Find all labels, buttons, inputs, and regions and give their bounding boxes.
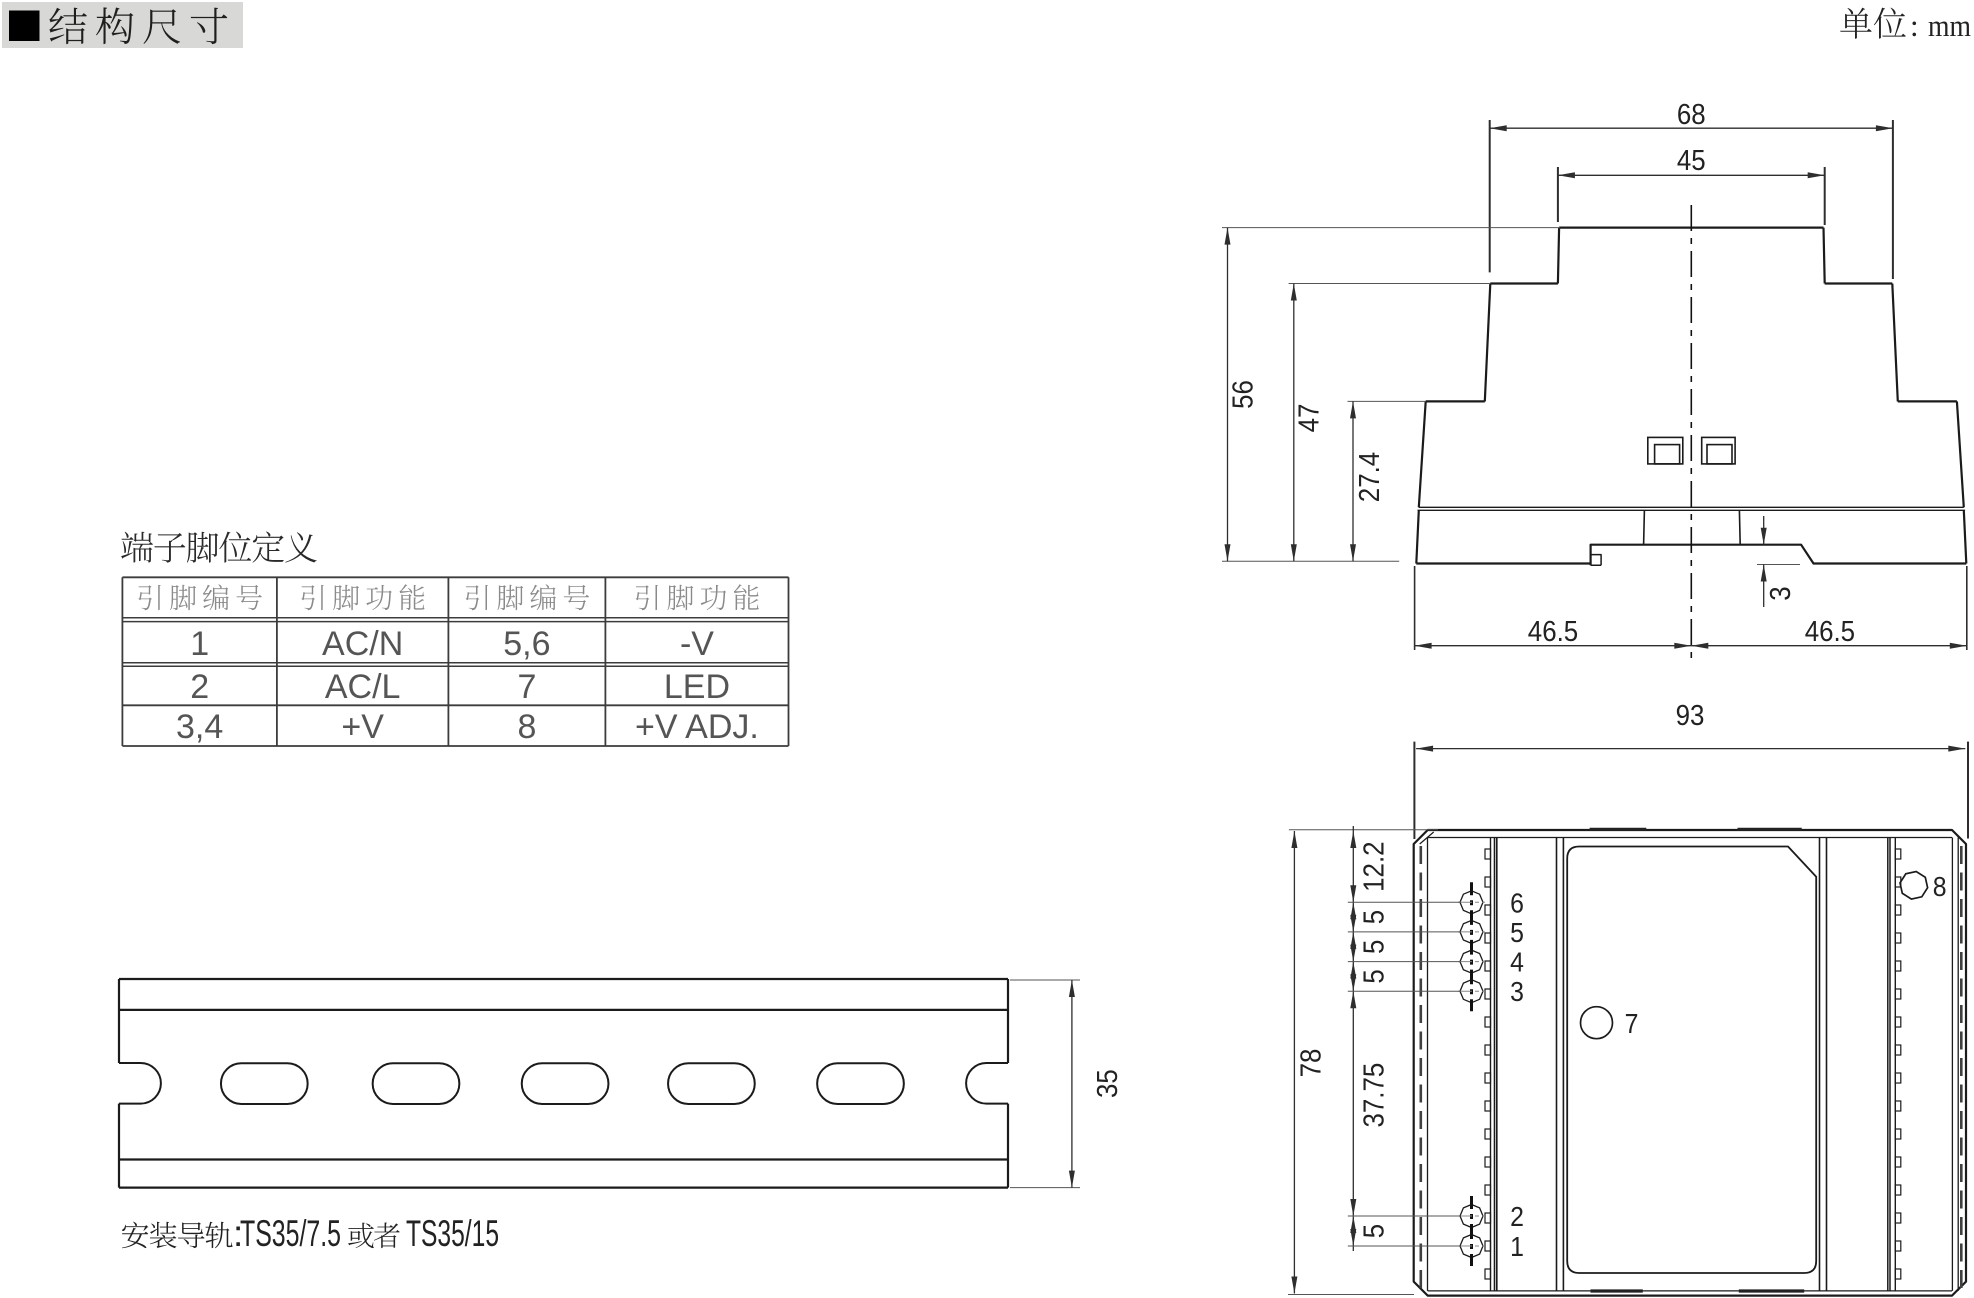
svg-text:5: 5 [1359, 910, 1391, 924]
svg-text:1: 1 [1510, 1231, 1524, 1262]
svg-text:12.2: 12.2 [1359, 841, 1391, 891]
svg-text:-V: -V [680, 625, 714, 663]
svg-text:45: 45 [1677, 145, 1706, 177]
svg-text:LED: LED [664, 668, 730, 706]
svg-text:mm: mm [1928, 8, 1971, 43]
svg-text:5: 5 [1359, 1224, 1391, 1238]
svg-text:56: 56 [1227, 380, 1259, 409]
svg-text:7: 7 [517, 668, 536, 706]
svg-text:6: 6 [1510, 887, 1524, 918]
svg-text:AC/N: AC/N [322, 625, 403, 663]
svg-text:AC/L: AC/L [325, 668, 401, 706]
svg-text:68: 68 [1677, 99, 1706, 131]
svg-text:+V: +V [341, 708, 384, 746]
svg-text:2: 2 [190, 668, 209, 706]
svg-text:8: 8 [1933, 871, 1947, 902]
svg-text:TS35/7.5: TS35/7.5 [240, 1213, 341, 1254]
svg-text:93: 93 [1676, 700, 1705, 732]
svg-text:8: 8 [517, 708, 536, 746]
svg-text::: : [1910, 8, 1919, 43]
svg-text:37.75: 37.75 [1359, 1063, 1391, 1128]
svg-text:5,6: 5,6 [503, 625, 550, 663]
svg-text:3: 3 [1510, 976, 1524, 1007]
svg-text:5: 5 [1359, 969, 1391, 983]
svg-text:4: 4 [1510, 947, 1524, 978]
svg-text:46.5: 46.5 [1528, 616, 1578, 648]
svg-text:5: 5 [1510, 917, 1524, 948]
svg-text:47: 47 [1294, 404, 1326, 433]
svg-text:1: 1 [190, 625, 209, 663]
svg-text:3,4: 3,4 [176, 708, 223, 746]
svg-text:27.4: 27.4 [1354, 452, 1386, 502]
svg-text:7: 7 [1625, 1008, 1639, 1039]
svg-text:35: 35 [1092, 1069, 1124, 1098]
svg-text:5: 5 [1359, 940, 1391, 954]
svg-text:TS35/15: TS35/15 [406, 1213, 499, 1254]
svg-text:3: 3 [1765, 586, 1797, 600]
svg-text:2: 2 [1510, 1201, 1524, 1232]
svg-text:+V ADJ.: +V ADJ. [635, 708, 759, 746]
svg-text:78: 78 [1295, 1049, 1327, 1078]
svg-text:46.5: 46.5 [1805, 616, 1855, 648]
